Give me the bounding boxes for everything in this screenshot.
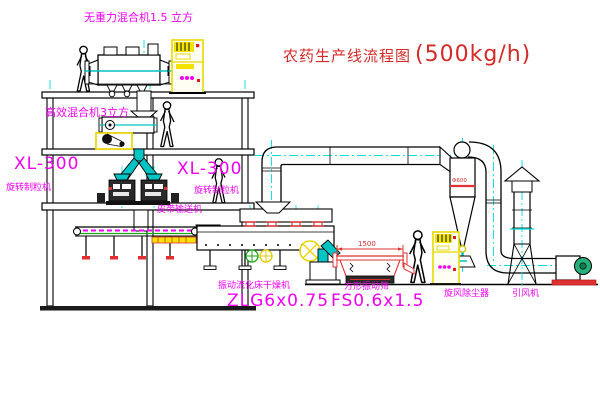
label-granulator-left-model: XL-300 [14,156,79,173]
rain-cap [505,167,539,181]
worker-figure-second-floor [161,102,174,147]
worker-figure-ground [410,231,425,282]
fluid-bed-dryer [196,205,340,284]
cabinet-knobs [180,76,194,80]
sieve-discharge-spout [404,263,414,274]
title-capacity: (500kg/h) [415,44,531,66]
label-granulator-left-name: 旋转制粒机 [6,184,51,193]
fan-base [552,280,596,285]
title-chinese: 农药生产线流程图 [283,49,411,64]
flow-diagram-canvas: 无重力混合机1.5 立方 农药生产线流程图 (500kg/h) 高效混合机3立方… [0,0,600,403]
page-title: 农药生产线流程图 (500kg/h) [283,44,531,66]
induced-draft-fan [552,256,596,285]
cabinet-knobs [438,265,451,269]
cyclone-outlet-duct [468,142,590,273]
label-second-mixer: 高效混合机3立方 [45,107,129,118]
granulator-left [106,180,138,205]
dimension-1500: 1500 [358,241,376,248]
label-cyclone: 旋风除尘器 [444,290,489,299]
granulators [97,149,179,210]
granulator-right [138,180,170,205]
exhaust-duct [255,140,452,213]
control-cabinet-upper [169,40,206,93]
label-granulator-center-model: XL-300 [177,161,242,178]
label-sieve-model: FS0.6x1.5 [331,293,424,310]
ground-line-building [40,306,256,311]
label-dryer-name: 振动流化床干燥机 [218,282,290,291]
cyclone-diameter-text: Φ600 [452,179,467,185]
hood-spigots [244,222,324,226]
control-cabinet-lower [430,232,461,284]
exhaust-stack [505,160,539,288]
dryer-feed-strip [152,237,196,243]
label-belt-conveyor: 皮带输送机 [157,206,202,215]
mixer-drive-box [96,133,132,149]
belt-conveyor [74,210,199,260]
label-dryer-model: ZLG6x0.75 [227,293,329,310]
label-gravity-free-mixer: 无重力混合机1.5 立方 [84,12,193,23]
label-granulator-center-name: 旋转制粒机 [194,187,239,196]
label-fan: 引风机 [512,290,539,299]
